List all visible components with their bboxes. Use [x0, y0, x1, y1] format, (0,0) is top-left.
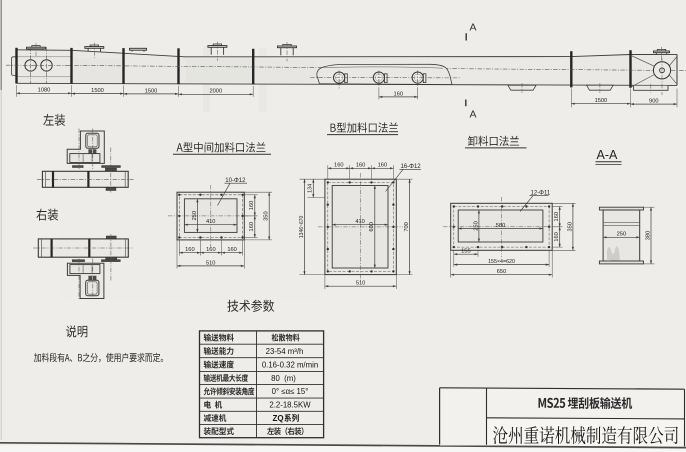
svg-text:1500: 1500 — [595, 98, 608, 104]
svg-text:900: 900 — [649, 99, 659, 105]
svg-text:250: 250 — [192, 211, 198, 221]
svg-text:1080: 1080 — [38, 88, 51, 94]
svg-text:ZQ: ZQ — [273, 414, 284, 423]
svg-text:160: 160 — [356, 163, 366, 169]
svg-text:350: 350 — [264, 211, 270, 221]
svg-text:1346~670: 1346~670 — [299, 215, 305, 238]
svg-text:600: 600 — [369, 222, 375, 232]
svg-text:160: 160 — [334, 163, 344, 169]
svg-text:160: 160 — [378, 163, 388, 169]
svg-text:250: 250 — [617, 232, 627, 238]
svg-text:160: 160 — [249, 222, 255, 232]
svg-text:A: A — [470, 109, 477, 121]
svg-text:2.2-18.5KW: 2.2-18.5KW — [269, 401, 311, 410]
svg-text:134: 134 — [308, 184, 314, 193]
svg-text:160: 160 — [554, 212, 560, 222]
svg-text:250: 250 — [473, 221, 479, 231]
svg-text:A-A: A-A — [597, 148, 619, 162]
svg-text:700: 700 — [404, 222, 410, 232]
svg-text:160: 160 — [185, 247, 195, 253]
svg-text:410: 410 — [355, 219, 365, 225]
svg-text:380: 380 — [645, 231, 651, 241]
svg-text:0.16-0.32 m/min: 0.16-0.32 m/min — [262, 360, 318, 369]
svg-text:1500: 1500 — [145, 88, 158, 94]
svg-text:510: 510 — [206, 260, 216, 266]
svg-text:160: 160 — [206, 247, 216, 253]
svg-text:410: 410 — [206, 219, 216, 225]
svg-text:155: 155 — [461, 249, 471, 255]
svg-text:80 (m): 80 (m) — [271, 374, 296, 383]
svg-text:650: 650 — [497, 269, 507, 275]
svg-text:160: 160 — [227, 247, 237, 253]
svg-text:160: 160 — [394, 91, 404, 97]
svg-text:2000: 2000 — [209, 89, 222, 95]
svg-text:160: 160 — [249, 201, 255, 211]
svg-text:0° ≤α≤ 15°: 0° ≤α≤ 15° — [272, 387, 309, 396]
svg-text:510: 510 — [356, 281, 366, 287]
svg-text:350: 350 — [567, 222, 573, 232]
svg-text:1500: 1500 — [91, 88, 104, 94]
svg-text:A: A — [470, 22, 477, 34]
svg-text:160: 160 — [554, 232, 560, 242]
svg-text:23-54 m³/h: 23-54 m³/h — [266, 347, 304, 356]
svg-text:580: 580 — [496, 223, 506, 229]
svg-text:155×4=620: 155×4=620 — [488, 259, 515, 265]
